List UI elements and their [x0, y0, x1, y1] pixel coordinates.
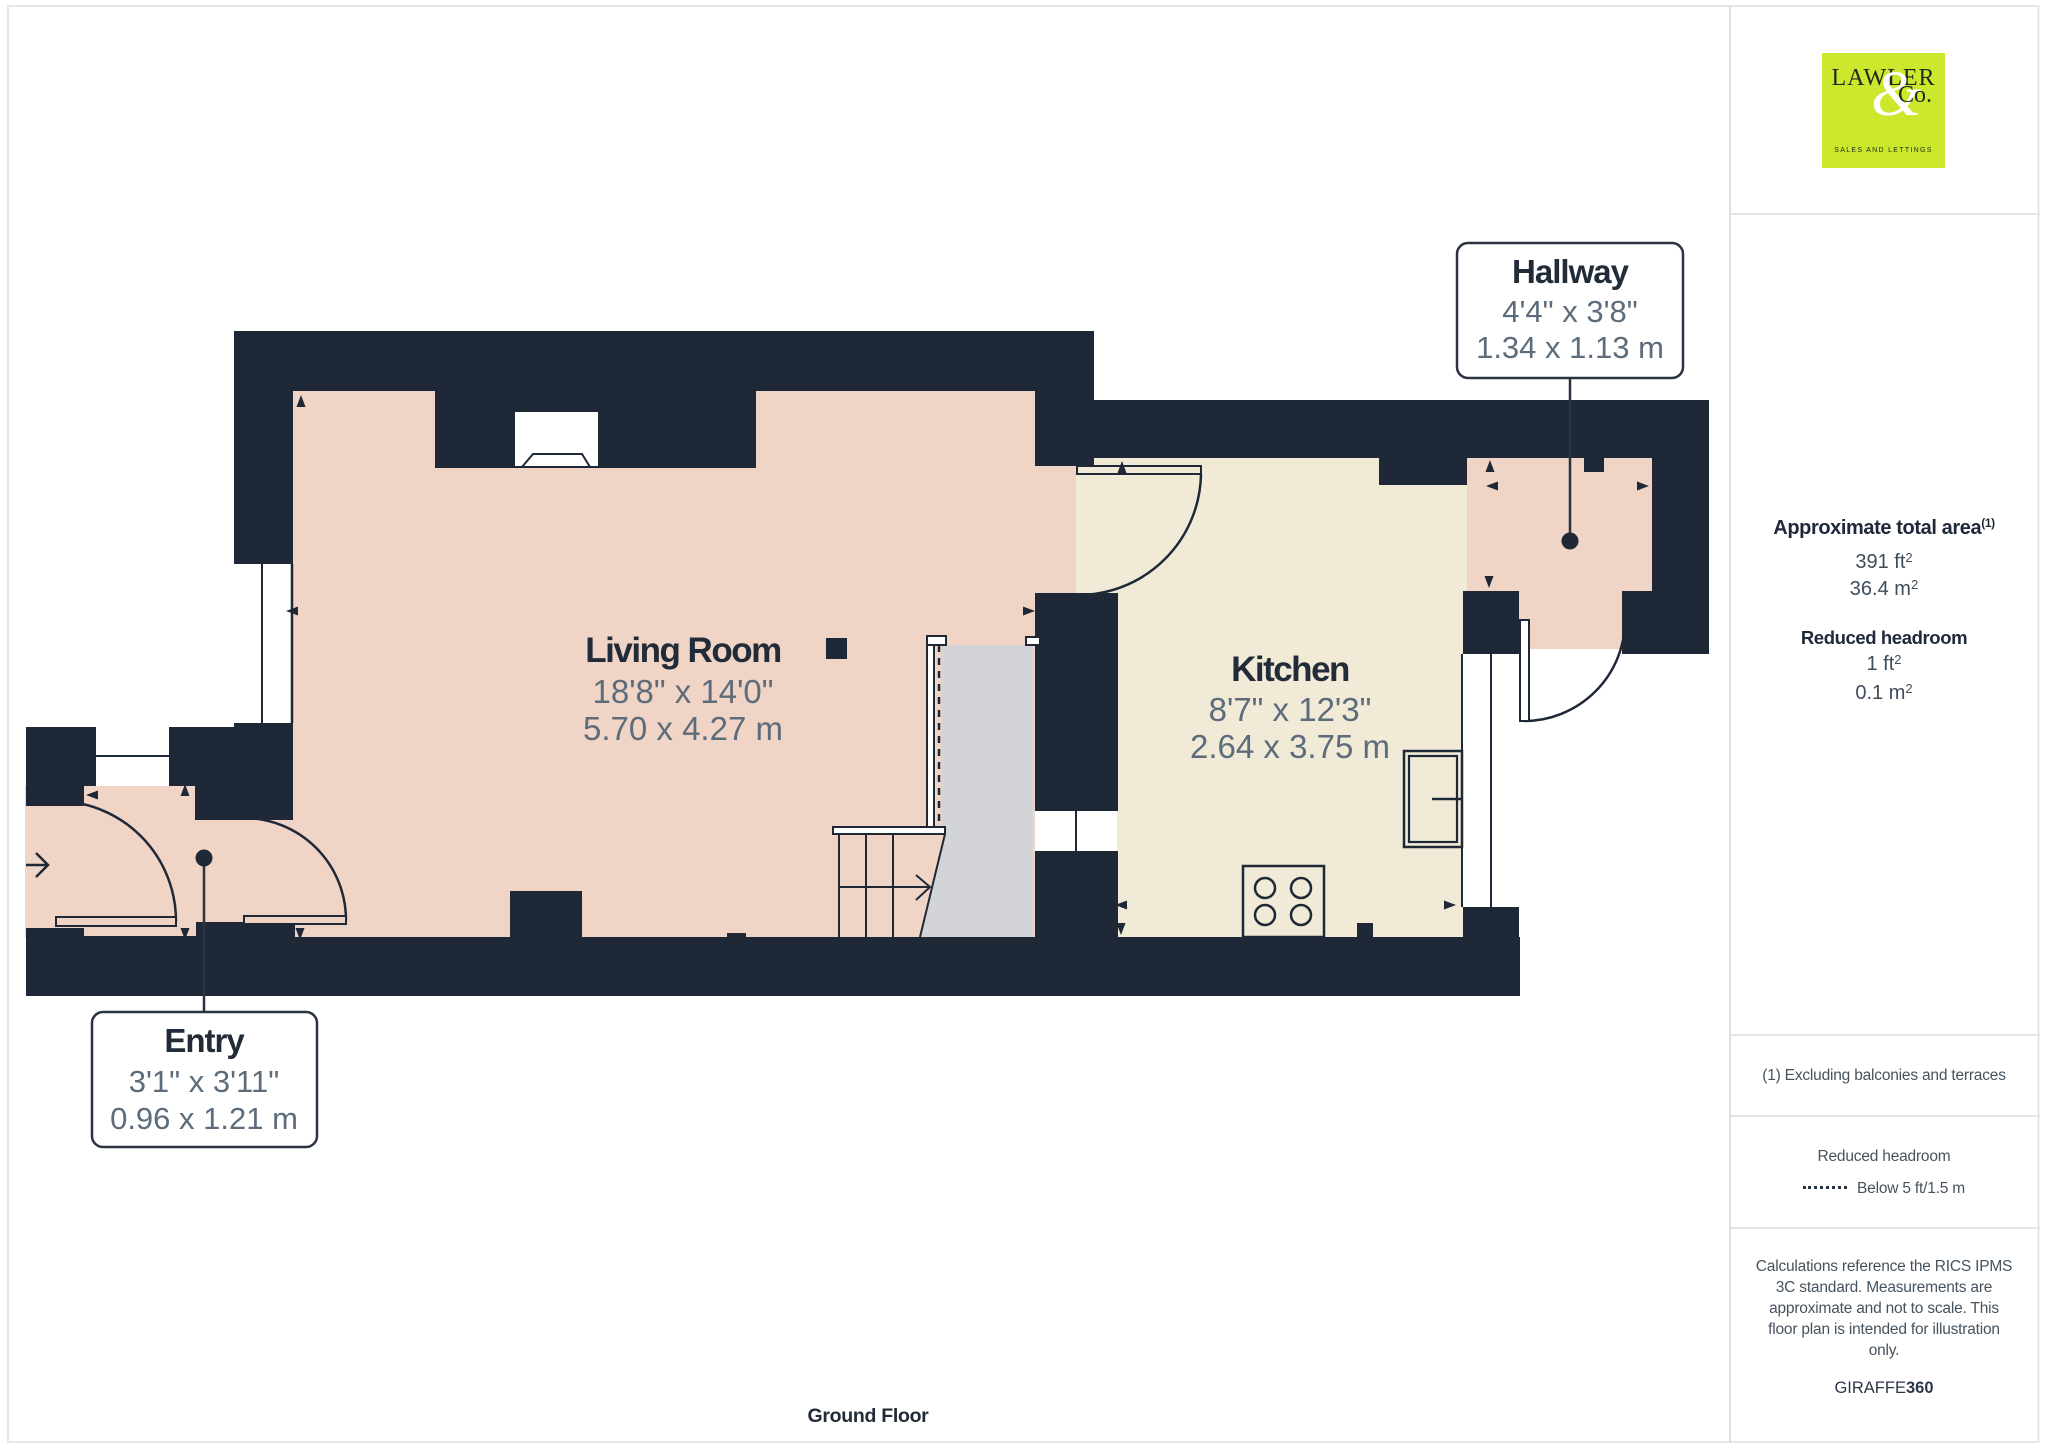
svg-text:0.96 x 1.21 m: 0.96 x 1.21 m — [110, 1101, 298, 1136]
svg-text:2.64 x 3.75 m: 2.64 x 3.75 m — [1190, 728, 1390, 765]
svg-text:Living Room: Living Room — [585, 631, 780, 670]
svg-text:3'1" x 3'11": 3'1" x 3'11" — [129, 1064, 279, 1099]
svg-text:1.34 x 1.13 m: 1.34 x 1.13 m — [1476, 330, 1664, 365]
svg-text:Hallway: Hallway — [1512, 253, 1630, 290]
svg-text:18'8" x 14'0": 18'8" x 14'0" — [593, 673, 774, 710]
svg-text:Ground Floor: Ground Floor — [808, 1405, 930, 1427]
svg-text:4'4" x 3'8": 4'4" x 3'8" — [1502, 294, 1638, 329]
svg-text:Entry: Entry — [164, 1022, 245, 1059]
svg-text:Kitchen: Kitchen — [1231, 650, 1349, 689]
svg-text:8'7" x 12'3": 8'7" x 12'3" — [1209, 691, 1372, 728]
svg-text:5.70 x 4.27 m: 5.70 x 4.27 m — [583, 710, 783, 747]
